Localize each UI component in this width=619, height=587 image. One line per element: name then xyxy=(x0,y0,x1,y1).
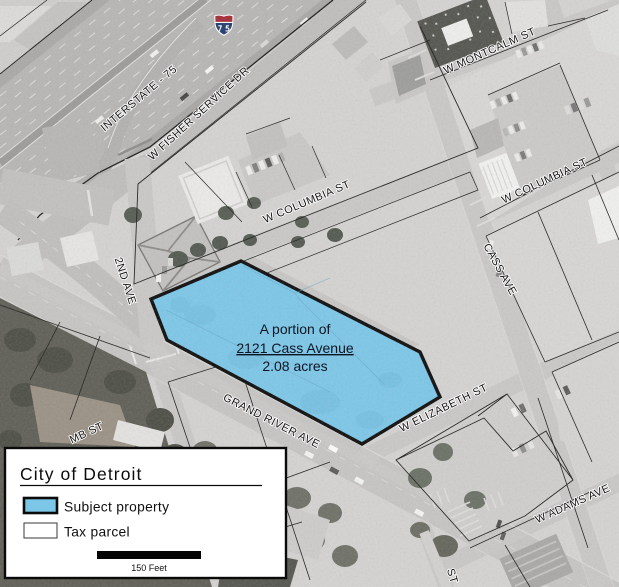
svg-text:2.08 acres: 2.08 acres xyxy=(262,358,327,374)
svg-text:A portion of: A portion of xyxy=(260,321,331,337)
svg-text:150 Feet: 150 Feet xyxy=(131,563,167,573)
svg-text:Tax parcel: Tax parcel xyxy=(64,525,130,540)
svg-text:Subject property: Subject property xyxy=(64,500,169,515)
svg-text:2121 Cass Avenue: 2121 Cass Avenue xyxy=(236,340,353,356)
svg-text:City of Detroit: City of Detroit xyxy=(20,464,143,484)
